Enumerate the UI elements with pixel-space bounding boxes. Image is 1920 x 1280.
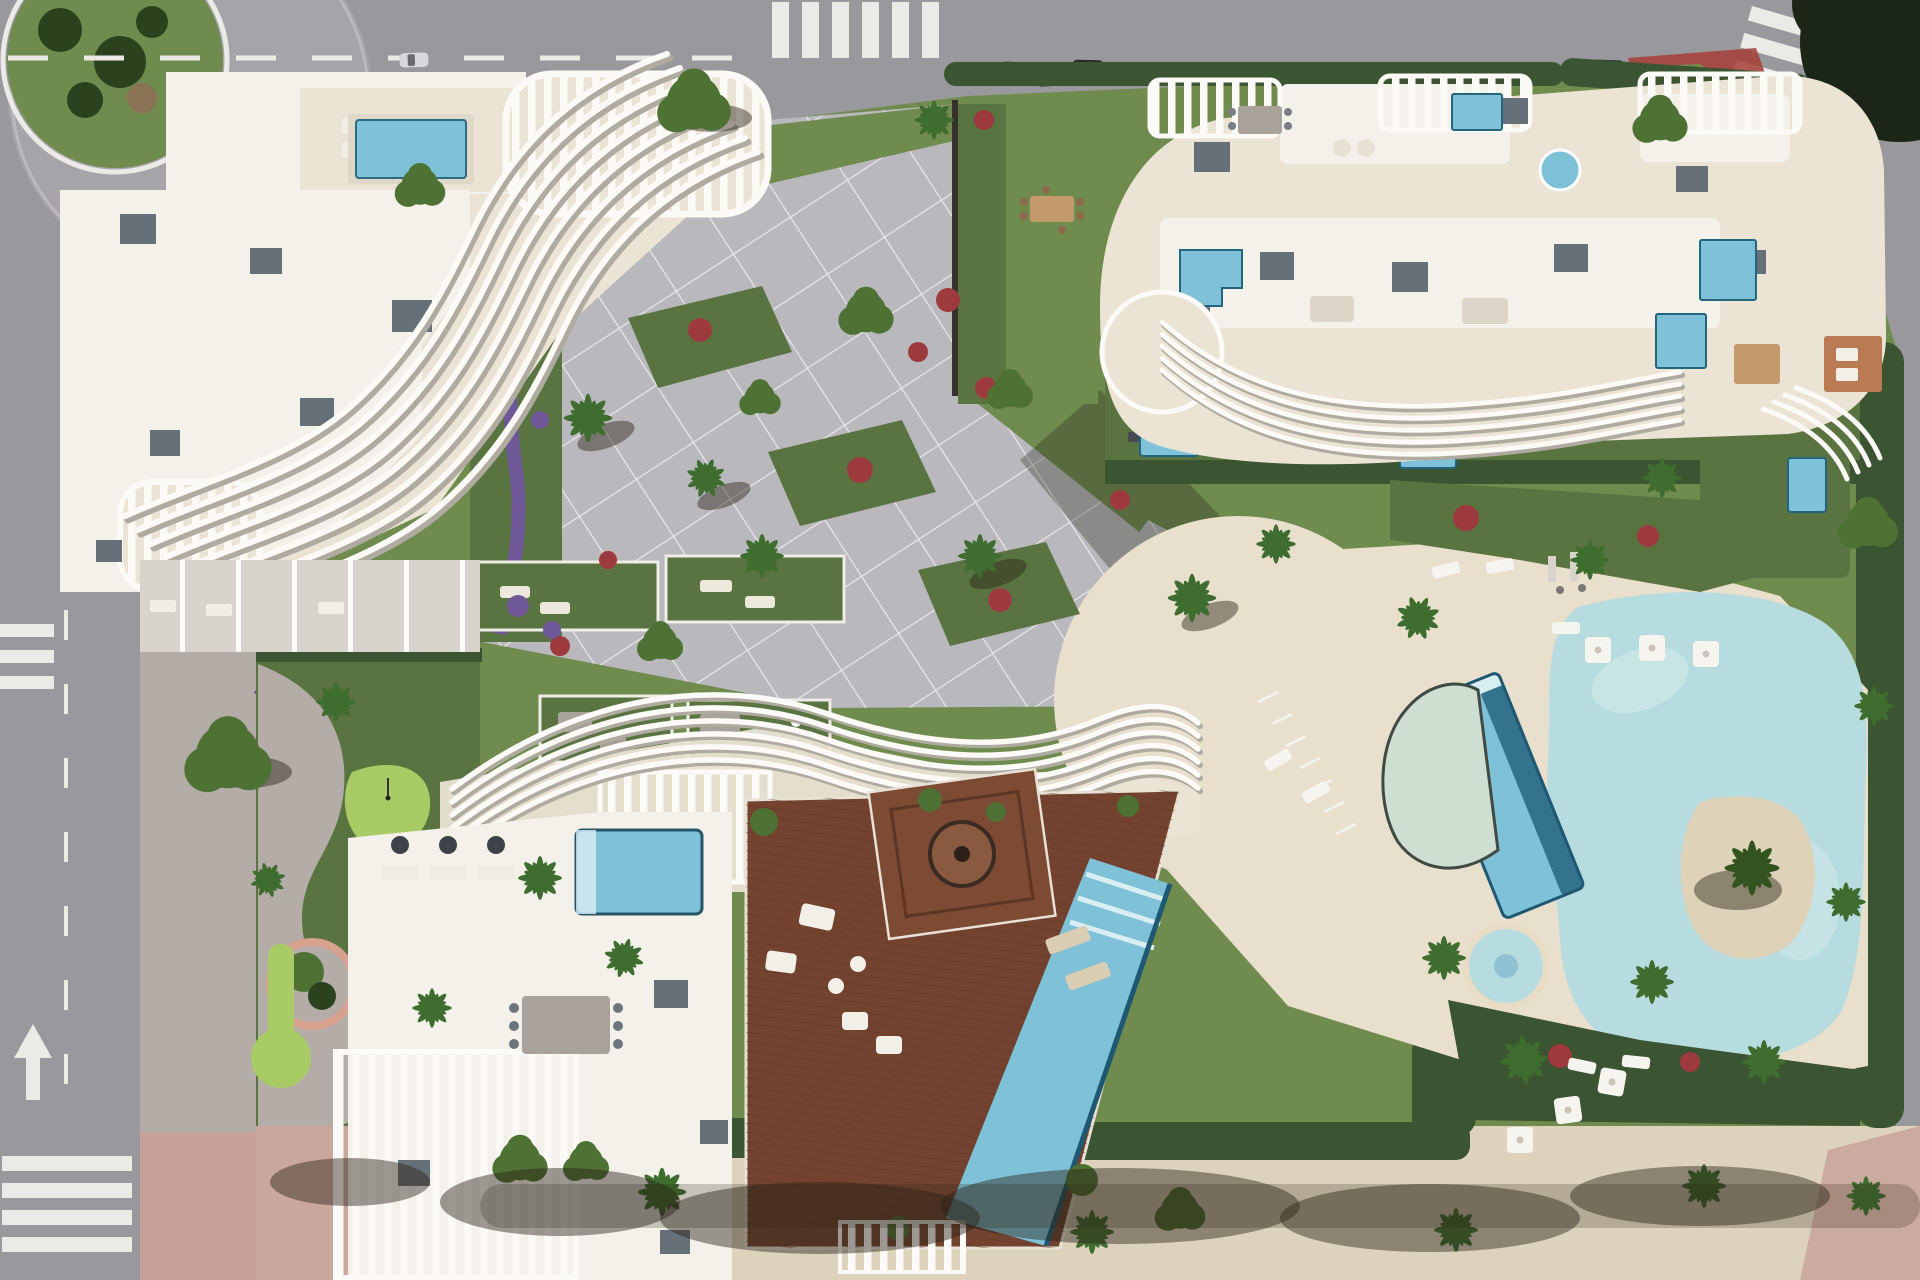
planter-bush-dark [308, 982, 336, 1010]
parasol-icon [1597, 1067, 1627, 1097]
annex-lounger [206, 604, 232, 616]
palm-icon [1826, 882, 1866, 922]
patio-lounger [540, 602, 570, 614]
parasol-icon [1507, 1127, 1533, 1153]
palm-icon [1630, 960, 1674, 1004]
palm-icon [1256, 524, 1296, 564]
parasol-icon [1639, 635, 1665, 661]
b3-pool-steps [576, 830, 596, 914]
garden-dining-table [1030, 196, 1074, 222]
rooftop-pool [1700, 240, 1756, 300]
east-garden-pool [1788, 458, 1826, 512]
palm-icon [1168, 574, 1216, 622]
parasol-icon [1553, 1095, 1582, 1124]
terracotta-rug [1824, 336, 1882, 392]
b1-south-annex [140, 560, 480, 652]
palm-icon [740, 534, 784, 578]
deck-pavilion [869, 769, 1056, 939]
palm-icon [1742, 1040, 1786, 1084]
parasol-icon [1585, 637, 1611, 663]
aerial-render [0, 0, 1920, 1280]
annex-lounger [318, 602, 344, 614]
palm-icon [958, 534, 1002, 578]
patio-lounger [745, 596, 775, 608]
palm-icon [914, 100, 954, 140]
lounger-icon [1552, 622, 1580, 634]
parasol-icon [1693, 641, 1719, 667]
lawn-strip-east [1010, 104, 1098, 404]
scene-canvas [0, 0, 1920, 1280]
palm-icon [1570, 540, 1610, 580]
flower-bed-strip [958, 104, 1006, 404]
hedge-bottom-east [1050, 1122, 1470, 1160]
left-sidewalk-pink [140, 1132, 256, 1280]
northeast-residential-building [1100, 74, 1886, 479]
patio-3 [472, 562, 658, 630]
palm-icon [1642, 458, 1682, 498]
patio-lounger [700, 580, 732, 592]
b3-dining-set [522, 996, 610, 1054]
crosswalk-mid-left [0, 624, 54, 689]
palm-icon [518, 856, 562, 900]
rooftop-dining [1734, 344, 1780, 384]
island-palm [1725, 841, 1780, 896]
palm-icon [1854, 686, 1894, 726]
palm-icon [316, 682, 356, 722]
annex-lounger [150, 600, 176, 612]
palm-icon [1422, 936, 1466, 980]
rooftop-pool [1452, 94, 1502, 130]
rooftop-pool [1656, 314, 1706, 368]
palm-icon [412, 988, 452, 1028]
kids-pool-center [1494, 954, 1518, 978]
garden-wall [952, 100, 958, 396]
rooftop-spa [1540, 150, 1580, 190]
golf-hole [386, 796, 391, 801]
car-light [399, 52, 428, 67]
palm-icon [564, 394, 612, 442]
